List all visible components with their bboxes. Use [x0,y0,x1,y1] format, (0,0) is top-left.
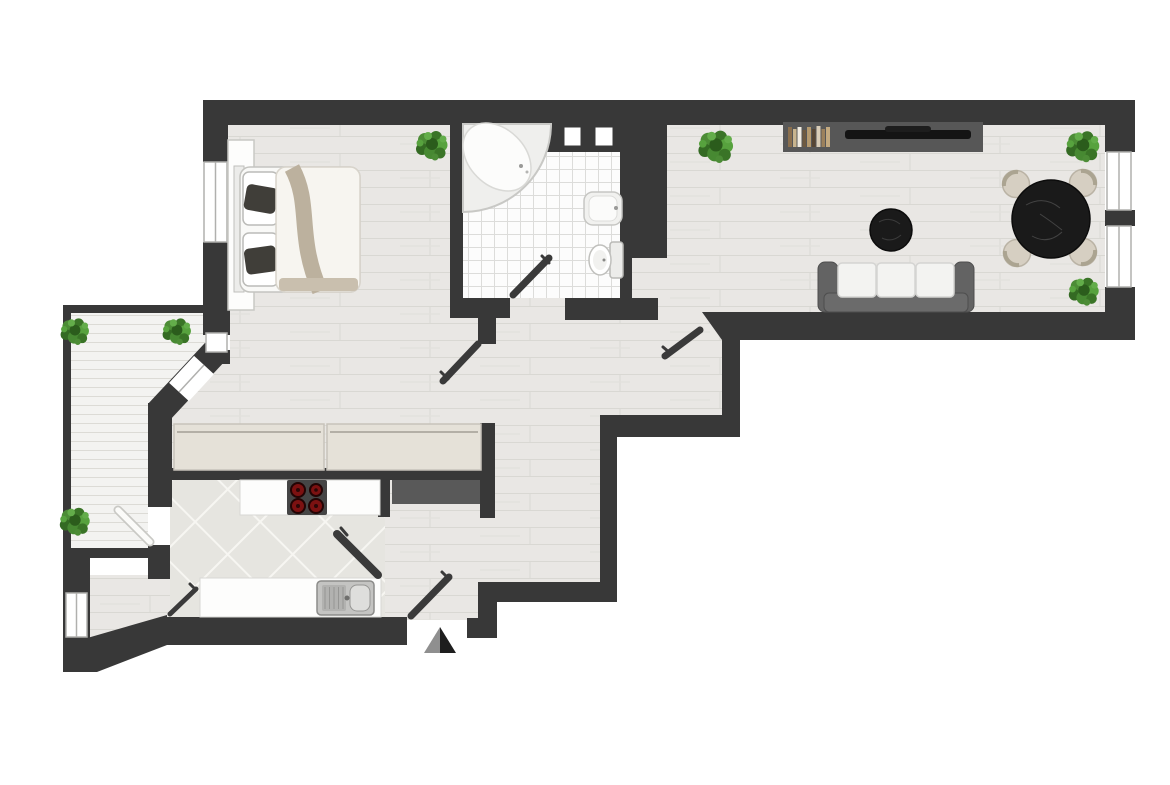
cushion [243,245,278,275]
window-living-2 [1107,226,1131,287]
entrance-arrow [424,627,456,653]
sink-counter [200,578,381,617]
wall-bath-right-chunk [620,125,667,258]
floor-plan-svg [0,0,1170,785]
window-bedroom [204,162,227,242]
dining-set [997,164,1102,272]
wall-kitchen-right [480,423,495,518]
balcony-railing-bottom [63,548,148,558]
kitchen-appliance [392,480,480,504]
media-console [783,122,983,152]
sofa [818,262,974,312]
wall-bath-bottom-right [565,298,658,320]
sofa-cushion [838,263,876,297]
wall-bedroom-left-top [203,100,228,162]
cushion [243,183,279,214]
coffee-table [870,209,912,251]
vent-shaft-1 [563,126,582,147]
wall-living-bottom [738,312,1135,340]
wall-corridor-right [600,415,617,602]
wall-bedroom-left-mid [203,242,230,335]
blanket-footer [279,278,358,291]
bed [234,166,360,292]
wall-top [203,100,1135,125]
wall-right-mullion [1105,210,1135,226]
bathroom-sink [584,192,622,225]
dining-table [1012,180,1090,258]
wall-corridor-bottom [478,582,617,602]
wall-bath-left [450,125,463,300]
wall-bath-bottom-left [450,298,510,318]
floor-plan [0,0,1170,785]
window-diagonal [179,365,204,392]
sofa-cushion [877,263,915,297]
cooktop [287,480,327,515]
wall-pillar [148,545,170,579]
kitchen-sink [317,581,374,615]
window-bedroom-small [206,333,227,352]
vent-shaft-2 [594,126,614,147]
books [788,126,830,147]
balcony-railing-top [63,305,213,313]
wall-bedroom-door-stub [478,318,496,344]
wall-step-horizontal [467,618,497,638]
toilet [589,242,623,278]
cooktop-counter [240,480,380,515]
wall-kitchen-bottom [167,617,407,645]
window-living-1 [1107,152,1131,210]
sideboard [174,424,481,470]
window-vestibule [66,593,87,637]
wall-hall-bottom [600,415,740,437]
wall-right-top [1105,100,1135,152]
sofa-cushion [916,263,954,297]
